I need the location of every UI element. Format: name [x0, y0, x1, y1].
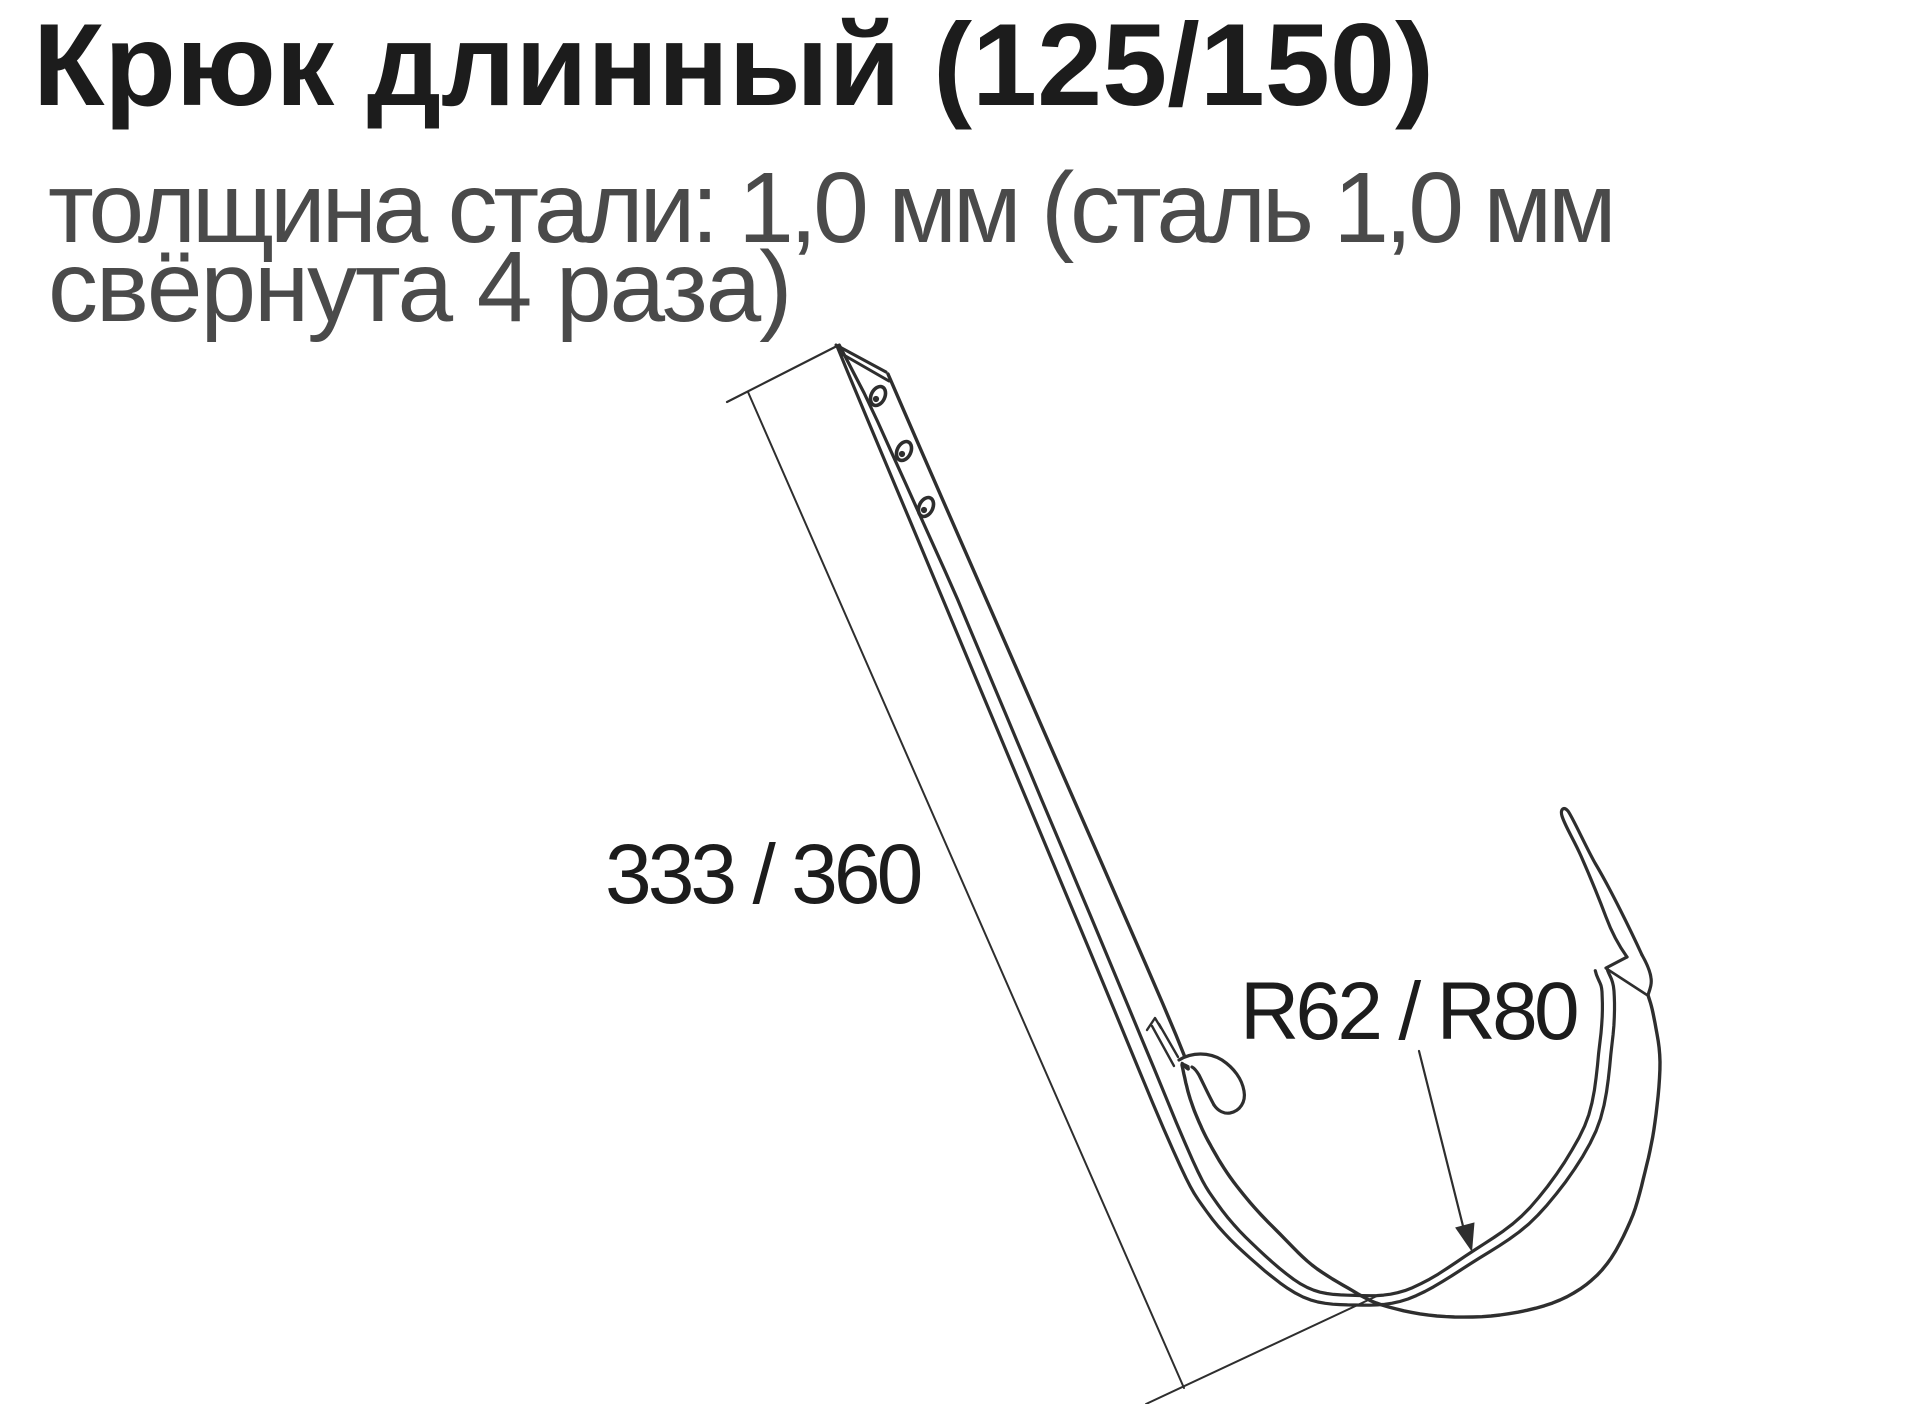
svg-text:333 / 360: 333 / 360	[605, 827, 921, 921]
svg-text:R62 / R80: R62 / R80	[1240, 966, 1577, 1057]
